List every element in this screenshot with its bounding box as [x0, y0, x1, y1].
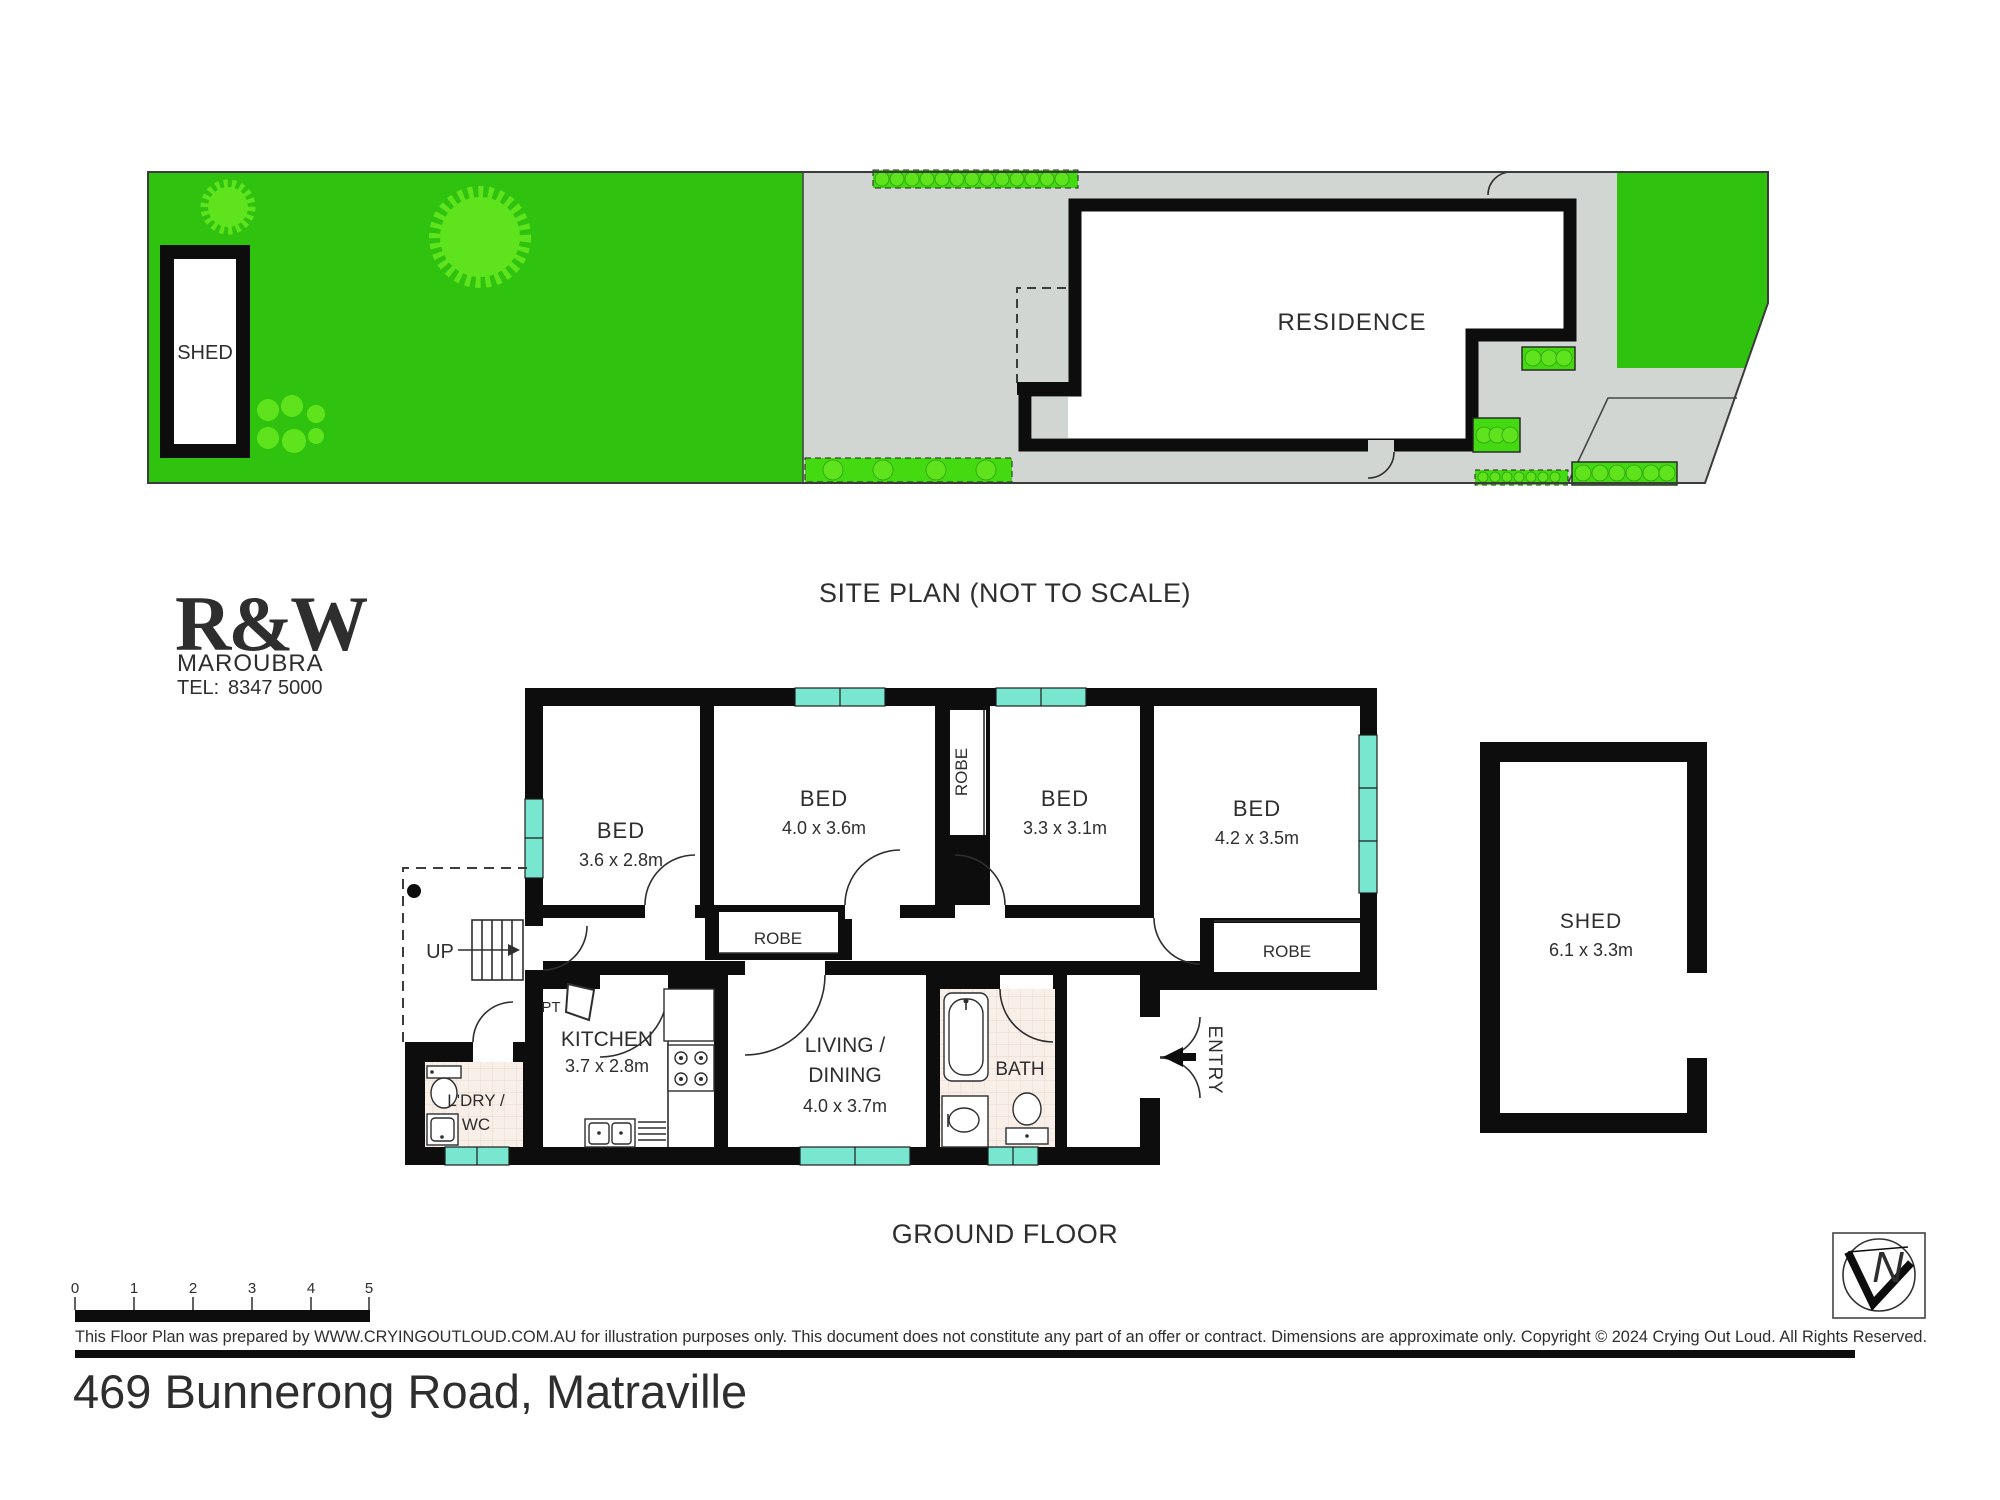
bed1-dims: 3.6 x 2.8m — [579, 850, 663, 870]
scale-tick-5: 5 — [365, 1280, 373, 1297]
porch-stairs: UP — [403, 868, 527, 1042]
scale-tick-3: 3 — [248, 1280, 256, 1297]
site-shed-label: SHED — [177, 342, 233, 364]
floorplan-canvas: SHED RESIDENCE — [0, 0, 2000, 1500]
residence-porch-floor — [1032, 397, 1068, 438]
address-title: 469 Bunnerong Road, Matraville — [73, 1365, 747, 1418]
footer-rule — [75, 1350, 1855, 1358]
porch-post-dot — [407, 884, 421, 898]
front-lawn — [1617, 172, 1768, 368]
agency-logo: R&W MAROUBRA TEL: 8347 5000 — [175, 580, 367, 699]
site-residence-label: RESIDENCE — [1277, 309, 1426, 336]
living-dims: 4.0 x 3.7m — [803, 1096, 887, 1116]
site-shed: SHED — [160, 245, 250, 458]
floor-plan: ROBE — [403, 688, 1707, 1165]
site-plan: SHED RESIDENCE — [148, 170, 1768, 485]
up-label: UP — [426, 941, 454, 963]
garden-strip-bottom-left — [805, 458, 1012, 482]
scale-tick-2: 2 — [189, 1280, 197, 1297]
living-label-2: DINING — [808, 1064, 882, 1087]
kitchen-dims: 3.7 x 2.8m — [565, 1056, 649, 1076]
bed4-dims: 4.2 x 3.5m — [1215, 828, 1299, 848]
bathtub-icon — [944, 993, 988, 1081]
north-arrow: N — [1833, 1233, 1925, 1318]
north-label: N — [1872, 1243, 1904, 1292]
scale-tick-0: 0 — [71, 1280, 79, 1297]
disclaimer-text: This Floor Plan was prepared by WWW.CRYI… — [75, 1328, 1927, 1346]
bed1-floor — [543, 706, 700, 905]
plan-shed: SHED 6.1 x 3.3m — [1480, 742, 1707, 1133]
residence-carport — [1018, 288, 1066, 382]
scale-bar-rule — [75, 1310, 370, 1322]
entry-arrow-icon — [1163, 1047, 1196, 1067]
bed2-dims: 4.0 x 3.6m — [782, 818, 866, 838]
plan-shed-dims: 6.1 x 3.3m — [1549, 940, 1633, 960]
robe3-label: ROBE — [1263, 942, 1311, 961]
site-plan-title: SITE PLAN (NOT TO SCALE) — [819, 578, 1191, 608]
bed3-dims: 3.3 x 3.1m — [1023, 818, 1107, 838]
hallway-floor — [543, 918, 1200, 961]
bed2-label: BED — [800, 786, 848, 811]
bed1-label: BED — [597, 818, 645, 843]
kitchen-label: KITCHEN — [561, 1028, 653, 1051]
bed3-label: BED — [1041, 786, 1089, 811]
laundry-label-2: WC — [462, 1115, 490, 1134]
laundry-sink-icon — [427, 1114, 458, 1145]
floorplan-document: SHED RESIDENCE — [0, 0, 2000, 1500]
scale-bar: 0 1 2 3 4 5 — [71, 1280, 373, 1322]
entry-label: ENTRY — [1204, 1025, 1225, 1094]
scale-tick-4: 4 — [307, 1280, 315, 1297]
logo-tel-number: 8347 5000 — [228, 677, 323, 699]
pantry-label: PT — [541, 999, 560, 1016]
living-label-1: LIVING / — [805, 1034, 886, 1057]
logo-suburb: MAROUBRA — [177, 650, 324, 677]
scale-tick-1: 1 — [130, 1280, 138, 1297]
garden-strip-lower-right — [1473, 418, 1520, 452]
robe1: ROBE — [705, 905, 852, 960]
bath-label: BATH — [995, 1059, 1044, 1080]
laundry-label-1: L'DRY / — [447, 1091, 505, 1110]
bed4-label: BED — [1233, 796, 1281, 821]
robe2-label: ROBE — [952, 748, 971, 796]
logo-tel-label: TEL: — [177, 677, 219, 699]
plan-shed-label: SHED — [1560, 910, 1622, 933]
vanity-sink-icon — [942, 1096, 988, 1147]
robe1-label: ROBE — [754, 929, 802, 948]
garden-strip-mid-right — [1522, 347, 1575, 370]
garden-strip-bottom-right — [1572, 462, 1677, 485]
ground-floor-title: GROUND FLOOR — [892, 1219, 1119, 1249]
